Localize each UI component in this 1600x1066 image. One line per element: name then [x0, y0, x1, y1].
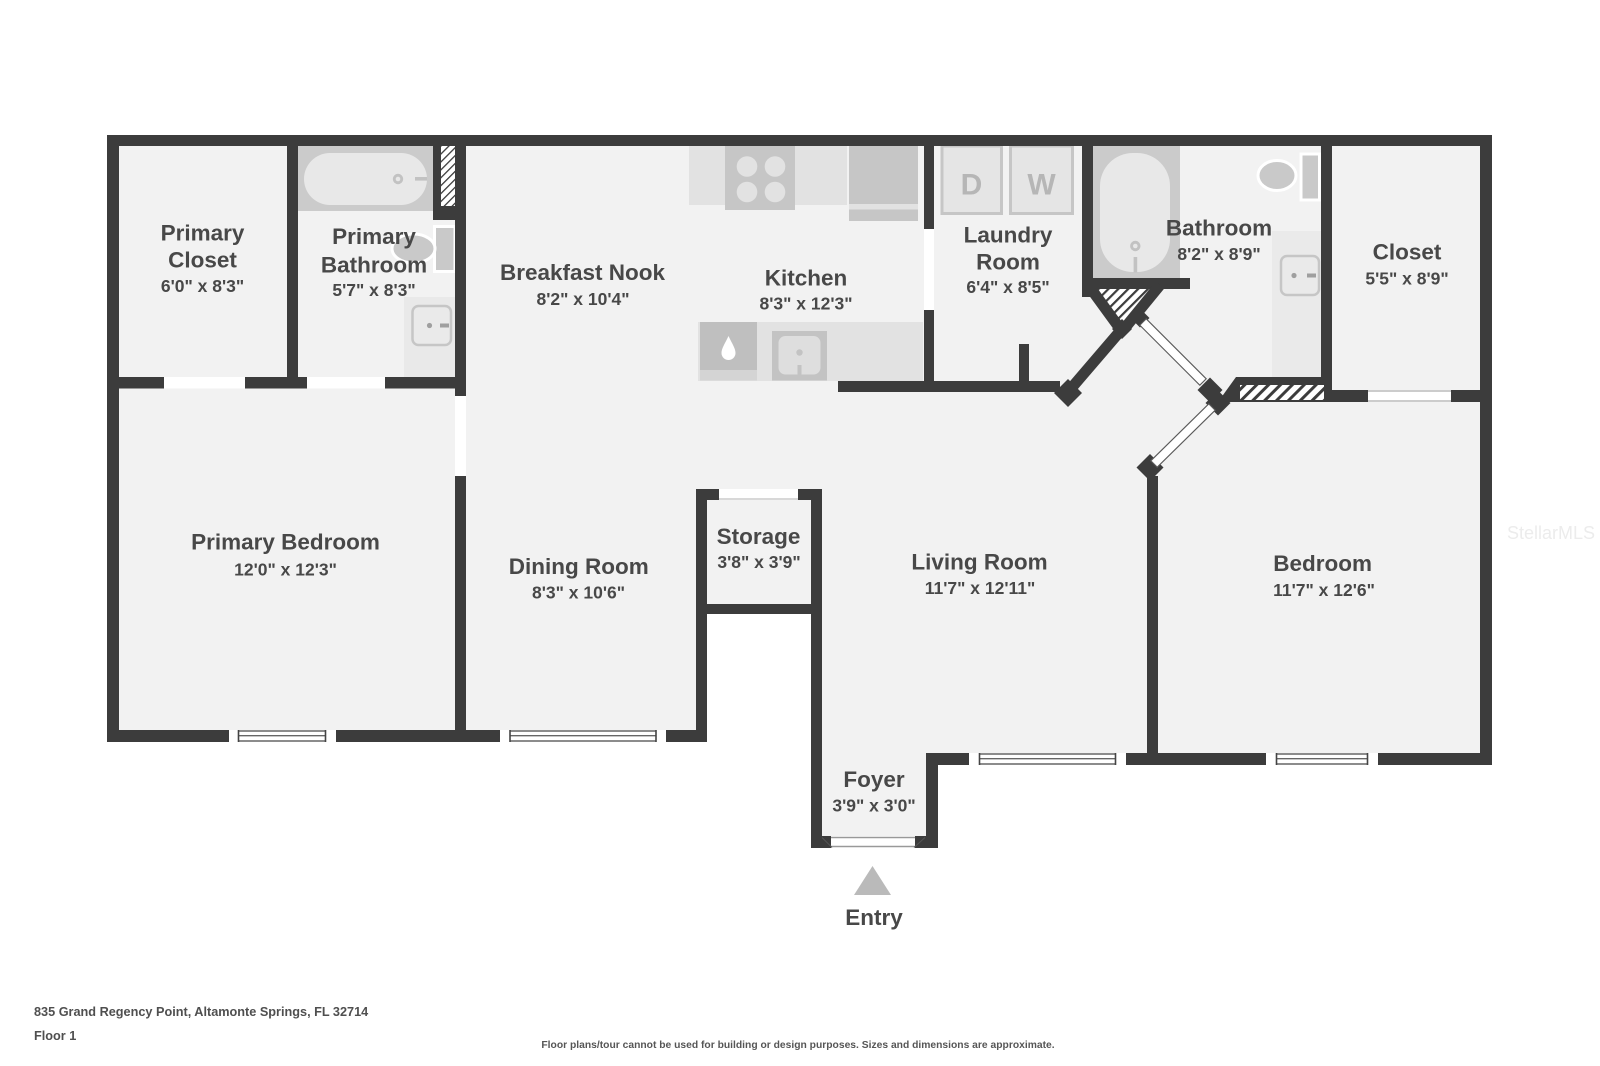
svg-text:5'5" x 8'9": 5'5" x 8'9"	[1365, 269, 1448, 289]
svg-text:Primary Bedroom: Primary Bedroom	[191, 530, 380, 555]
svg-text:8'3" x 10'6": 8'3" x 10'6"	[532, 583, 625, 603]
svg-text:8'2" x 10'4": 8'2" x 10'4"	[536, 289, 629, 309]
svg-text:6'0" x 8'3": 6'0" x 8'3"	[161, 276, 244, 296]
svg-text:Bathroom: Bathroom	[321, 253, 427, 278]
svg-text:Primary: Primary	[332, 224, 416, 249]
svg-text:Primary: Primary	[161, 221, 245, 246]
svg-text:8'3" x 12'3": 8'3" x 12'3"	[759, 294, 852, 314]
svg-text:D: D	[961, 169, 983, 202]
svg-text:6'4" x 8'5": 6'4" x 8'5"	[966, 277, 1049, 297]
svg-text:StellarMLS: StellarMLS	[1507, 523, 1595, 543]
svg-text:3'9" x 3'0": 3'9" x 3'0"	[832, 796, 915, 816]
svg-text:Dining Room: Dining Room	[509, 554, 649, 579]
svg-text:Floor 1: Floor 1	[34, 1029, 76, 1043]
svg-text:W: W	[1027, 169, 1056, 202]
svg-text:Closet: Closet	[168, 248, 237, 273]
svg-text:Breakfast Nook: Breakfast Nook	[500, 260, 666, 285]
svg-text:11'7" x 12'11": 11'7" x 12'11"	[925, 578, 1036, 598]
svg-text:Living Room: Living Room	[911, 550, 1047, 575]
svg-text:3'8" x 3'9": 3'8" x 3'9"	[717, 552, 800, 572]
svg-text:Foyer: Foyer	[843, 767, 905, 792]
svg-text:5'7" x 8'3": 5'7" x 8'3"	[332, 280, 415, 300]
svg-text:11'7" x 12'6": 11'7" x 12'6"	[1273, 580, 1375, 600]
svg-text:835 Grand Regency Point, Altam: 835 Grand Regency Point, Altamonte Sprin…	[34, 1005, 368, 1019]
svg-text:Closet: Closet	[1373, 240, 1442, 265]
svg-text:Floor plans/tour cannot be use: Floor plans/tour cannot be used for buil…	[541, 1040, 1054, 1051]
svg-text:Entry: Entry	[845, 905, 903, 930]
svg-text:Storage: Storage	[717, 524, 801, 549]
svg-text:Laundry: Laundry	[964, 223, 1053, 248]
svg-text:8'2" x 8'9": 8'2" x 8'9"	[1177, 244, 1260, 264]
svg-text:Room: Room	[976, 250, 1040, 275]
svg-text:Bedroom: Bedroom	[1273, 551, 1372, 576]
svg-text:Kitchen: Kitchen	[765, 266, 848, 291]
svg-text:Bathroom: Bathroom	[1166, 216, 1272, 241]
svg-text:12'0" x 12'3": 12'0" x 12'3"	[234, 560, 337, 580]
